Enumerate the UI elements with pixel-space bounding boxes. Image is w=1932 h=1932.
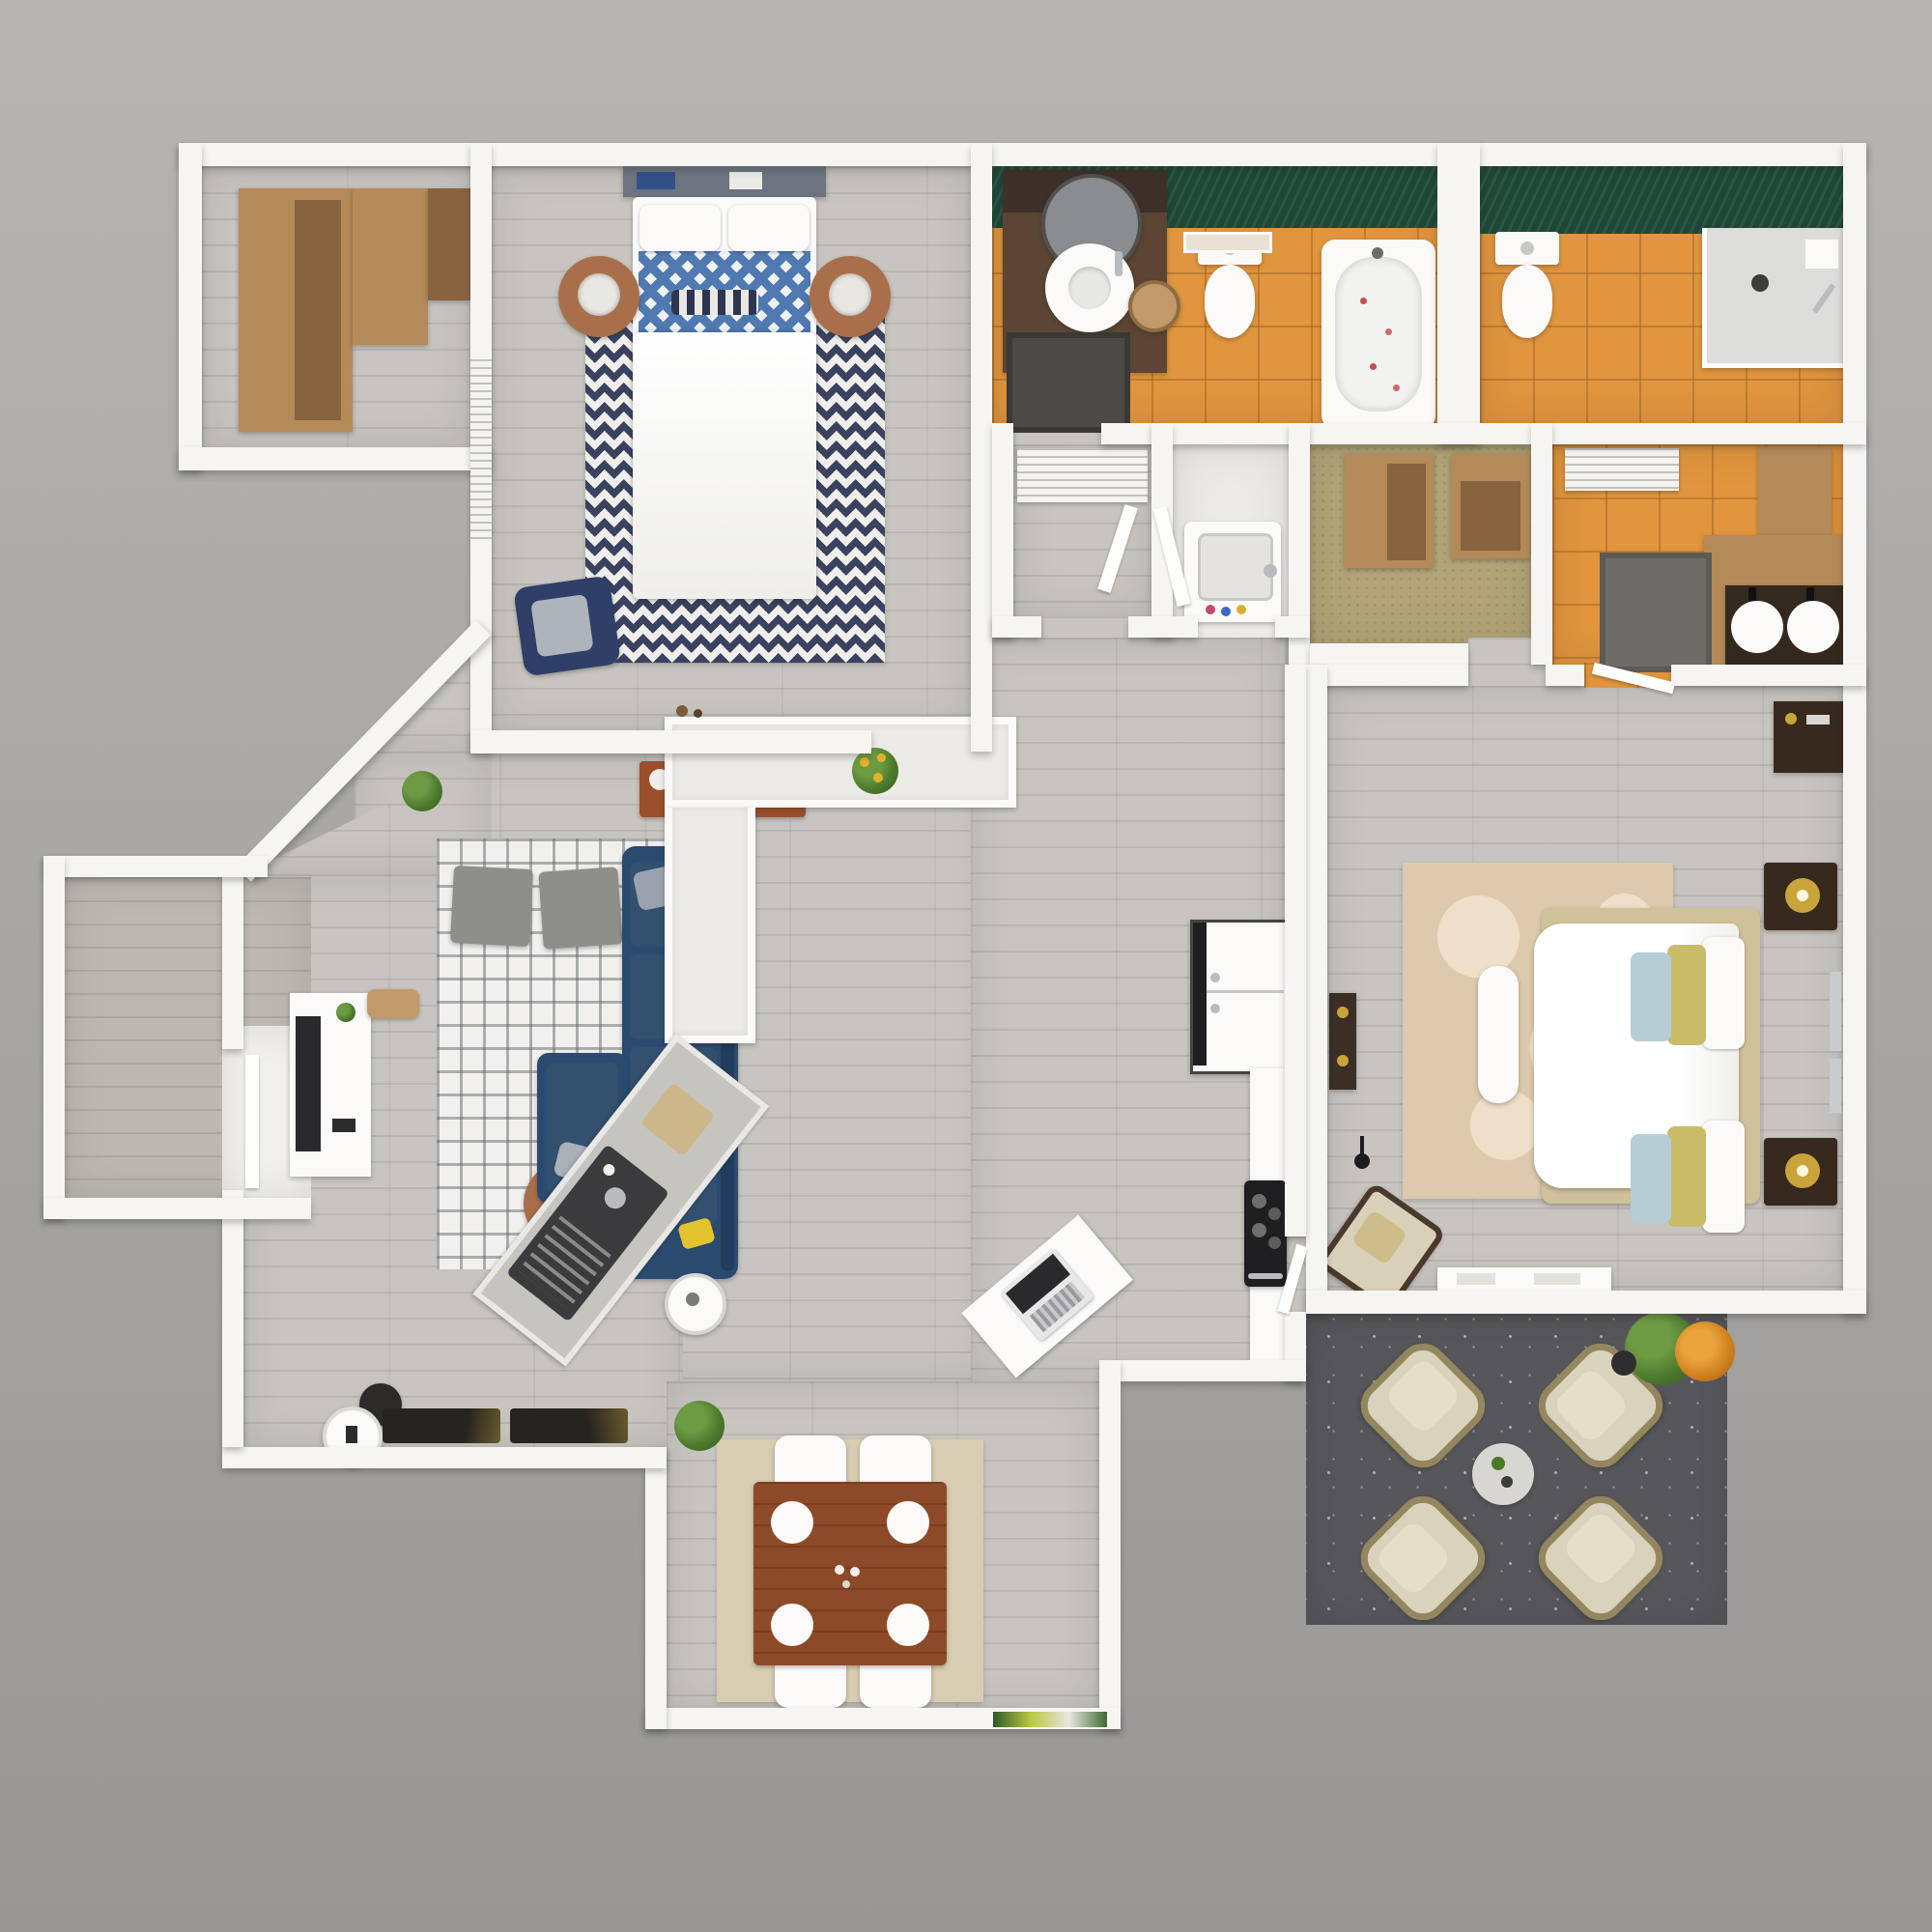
wall-hall-mid-b <box>1128 616 1198 638</box>
wall-baths-bottom <box>1101 423 1866 444</box>
patio-table <box>1472 1443 1534 1505</box>
master-window-ledge <box>1437 1267 1611 1293</box>
shower-caddy <box>1805 240 1838 269</box>
dining-plant-icon <box>674 1401 724 1451</box>
plate-icon <box>887 1501 929 1544</box>
paint-pot-icon <box>1236 605 1246 614</box>
wall-kitchen-bottom <box>1121 1360 1306 1381</box>
lamp-bulb <box>1797 1165 1808 1177</box>
cutting-board <box>640 1082 715 1156</box>
bath2-toilet-tank <box>1495 232 1559 265</box>
shower-drain-icon <box>1751 274 1769 292</box>
wardrobe-shadow <box>295 200 341 420</box>
wall-mastercloset-bottom <box>1310 643 1468 665</box>
bedroom2-headboard <box>623 166 826 197</box>
bedroom2-navy-armchair <box>513 575 621 676</box>
floorplan-render <box>0 0 1932 1932</box>
door-mat-1 <box>383 1408 500 1443</box>
armchair-pillow <box>1351 1209 1408 1265</box>
master-art-frame <box>1830 972 1841 1051</box>
faucet-icon <box>600 1183 630 1213</box>
wall-closet1-left <box>179 143 202 470</box>
wall-hall-mid-a <box>992 616 1041 638</box>
shelf-interior <box>1387 464 1426 560</box>
petal-icon <box>1370 363 1377 370</box>
utility-laundry-sink <box>1184 522 1281 622</box>
plant-icon <box>336 1003 355 1022</box>
faucet-icon <box>1748 587 1756 601</box>
sunflower-bloom <box>873 773 883 782</box>
shower-wand-icon <box>1812 283 1835 313</box>
wall-porch-left <box>43 856 65 1219</box>
fridge-handle-icon <box>1210 1004 1220 1013</box>
hall-closet-door-gap <box>1041 616 1128 638</box>
master-pillow-gold <box>1667 945 1706 1045</box>
bathroom2-green-tile-band <box>1480 166 1843 234</box>
kitchen-left-counter <box>665 808 755 1043</box>
decor-candle-icon <box>694 709 702 718</box>
chair-cushion <box>1561 1509 1640 1588</box>
bath1-mat <box>1007 332 1130 433</box>
bedroom2-bed <box>633 197 816 599</box>
fridge-seam <box>1207 990 1284 993</box>
master-closet-shelf-left <box>1345 454 1434 568</box>
bedroom2-nightstand-left <box>558 256 639 337</box>
sofa-side-table <box>665 1273 726 1335</box>
chair-cushion <box>1374 1519 1453 1598</box>
closet1-wardrobe-left <box>239 188 353 432</box>
gold-decor-icon <box>1337 1055 1349 1066</box>
plate-icon <box>771 1604 813 1646</box>
counter-top <box>672 808 748 1036</box>
faucet-icon <box>1806 587 1814 601</box>
closet1-wardrobe-top-a <box>353 188 428 345</box>
wall-living-bottom <box>222 1447 667 1468</box>
living-basket <box>367 989 419 1018</box>
wall-living-left-upper <box>222 874 243 1049</box>
closet1-wardrobe-top-b <box>428 188 470 300</box>
headboard-decor-icon <box>637 172 675 189</box>
oven-handle-icon <box>1248 1273 1283 1279</box>
wall-bath1-bath2-divider <box>1437 143 1480 444</box>
wall-hall-mid-c <box>1275 616 1310 638</box>
master-bath-louver-door <box>1565 448 1679 491</box>
plate-icon <box>887 1604 929 1646</box>
table-decor-icon <box>686 1293 699 1306</box>
tub-basin <box>1335 257 1422 412</box>
tub-faucet-icon <box>1372 247 1383 259</box>
decor-icon <box>346 1426 357 1443</box>
armchair-cushion <box>530 594 594 658</box>
petal-icon <box>1385 328 1392 335</box>
wall-dining-right <box>1099 1360 1121 1729</box>
paint-pot-icon <box>1206 605 1215 614</box>
plate-icon <box>771 1501 813 1544</box>
living-media-unit <box>290 993 371 1177</box>
bath1-vessel-sink <box>1045 243 1134 332</box>
ottoman-2 <box>538 867 622 950</box>
bath1-wicker-hamper <box>1128 280 1180 332</box>
master-nightstand-top <box>1764 863 1837 930</box>
kitchen-fridge <box>1190 920 1293 1074</box>
table-plant-icon <box>1492 1457 1505 1470</box>
bedroom2-nightstand-right <box>810 256 891 337</box>
dining-wall-art <box>993 1712 1107 1727</box>
vessel-sink <box>1787 601 1839 653</box>
hall-closet-louver-door <box>1017 448 1148 502</box>
potted-plant-icon <box>402 771 442 811</box>
fridge-gap <box>1193 923 1207 1065</box>
chair-cushion <box>1383 1356 1463 1435</box>
bath1-bathtub <box>1321 240 1435 429</box>
master-bath-upper-cabinet <box>1758 446 1832 535</box>
sunflower-bloom <box>877 753 886 762</box>
chair-cushion <box>1551 1366 1631 1445</box>
ledge-item <box>1534 1273 1580 1285</box>
burner-icon <box>1252 1223 1266 1237</box>
wall-master-bottom <box>1306 1291 1866 1314</box>
petal-icon <box>1393 384 1400 391</box>
master-pillow-white <box>1702 1121 1745 1233</box>
bedroom2-closet-louver-doors <box>470 359 492 543</box>
wall-dining-left <box>645 1447 667 1729</box>
wall-exterior-right <box>1843 143 1866 1314</box>
gold-lamp-icon <box>1785 1153 1820 1188</box>
decor-icon <box>1806 715 1830 724</box>
laundry-basin <box>1198 533 1273 601</box>
bed-duvet <box>633 332 816 599</box>
dining-table <box>753 1482 947 1665</box>
vessel-sink <box>1731 601 1783 653</box>
master-bath-mat <box>1600 553 1712 672</box>
sunflower-plant-icon <box>852 748 898 794</box>
table-lamp-icon <box>829 273 871 316</box>
bath2-corner-shower <box>1702 228 1848 368</box>
paint-pot-icon <box>1221 607 1231 616</box>
bed-chevron-pillow <box>671 290 758 315</box>
gold-decor-icon <box>1337 1007 1349 1018</box>
wall-living-left-lower <box>222 1190 243 1447</box>
bath1-towel-bar <box>1183 232 1272 253</box>
wall-master-top-c <box>1671 665 1866 686</box>
bath2-toilet-bowl <box>1502 265 1552 338</box>
master-closet-shelf-right <box>1451 454 1530 558</box>
fridge-handle-icon <box>1210 973 1220 982</box>
headboard-decor-icon <box>729 172 762 189</box>
burner-icon <box>1268 1236 1281 1249</box>
wall-bedroom2-bottom <box>470 730 871 753</box>
wall-porch-top <box>43 856 268 877</box>
wall-master-left <box>1306 665 1327 1314</box>
bed-pillow <box>728 205 810 251</box>
patio-plant-orange-icon <box>1675 1321 1735 1381</box>
master-bench <box>1478 966 1519 1103</box>
gold-decor-icon <box>1785 713 1797 724</box>
bath1-toilet-bowl <box>1205 265 1255 338</box>
front-door-leaf <box>245 1055 259 1188</box>
ottoman-1 <box>450 866 533 947</box>
pepper-shaker-icon <box>850 1567 860 1577</box>
wall-closet1-bottom <box>179 447 492 470</box>
plant-pot-icon <box>1611 1350 1636 1376</box>
burner-icon <box>1252 1194 1266 1208</box>
sink-basin <box>1068 267 1111 309</box>
wall-bedroom2-right <box>971 143 992 752</box>
decor-candle-icon <box>676 705 688 717</box>
cooktop <box>1244 1180 1287 1287</box>
master-bath-double-vanity <box>1725 585 1843 665</box>
table-decor-icon <box>842 1580 850 1588</box>
master-nightstand-bottom <box>1764 1138 1837 1206</box>
master-art-frame <box>1830 1059 1841 1113</box>
faucet-icon <box>1264 564 1277 578</box>
faucet-icon <box>1115 251 1122 276</box>
burner-icon <box>1268 1207 1281 1220</box>
wall-closet-masterbath-divider <box>1531 423 1552 665</box>
petal-icon <box>1360 298 1367 304</box>
master-pillow-blue <box>1631 1134 1671 1223</box>
bed-pillow <box>639 205 721 251</box>
shelf-interior <box>1461 481 1520 551</box>
table-lamp-icon <box>578 273 620 316</box>
master-pillow-white <box>1702 937 1745 1049</box>
table-decor-icon <box>1501 1476 1513 1488</box>
gold-lamp-icon <box>1785 878 1820 913</box>
tv-icon <box>296 1016 321 1151</box>
wall-master-top-b <box>1546 665 1584 686</box>
sunflower-bloom <box>860 757 869 767</box>
lamp-bulb <box>1797 890 1808 901</box>
door-mat-2 <box>510 1408 628 1443</box>
soap-icon <box>601 1162 617 1179</box>
salt-shaker-icon <box>835 1565 844 1575</box>
master-pillow-gold <box>1667 1126 1706 1227</box>
wall-exterior-top <box>179 143 1866 166</box>
wall-master-top-a <box>1306 665 1468 686</box>
ledge-item <box>1457 1273 1495 1285</box>
master-wall-console <box>1329 993 1356 1090</box>
master-pillow-blue <box>1631 952 1671 1041</box>
wall-porch-bottom <box>43 1198 311 1219</box>
wall-kitchen-right <box>1285 665 1306 1236</box>
flush-button-icon <box>1520 241 1534 255</box>
speaker-icon <box>332 1119 355 1132</box>
master-media-cabinet <box>1774 701 1843 773</box>
wall-hallcloset-left <box>992 423 1013 638</box>
floor-lamp-stem <box>1360 1136 1364 1159</box>
sink-drainboard <box>518 1215 611 1309</box>
